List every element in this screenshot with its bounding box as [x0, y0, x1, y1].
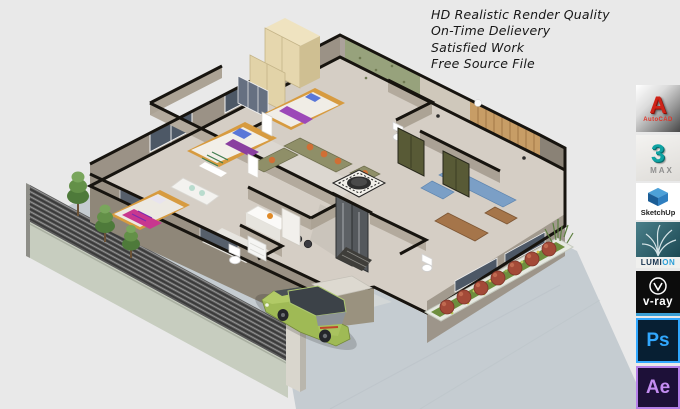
- logo-vray: v-ray: [636, 271, 680, 316]
- wall-lamp: [522, 156, 526, 160]
- sketchup-cube-icon: [647, 187, 669, 207]
- toilet: [230, 256, 241, 264]
- promo-line: Satisfied Work: [431, 40, 610, 56]
- taillight: [320, 327, 338, 328]
- lumion-label: LUMION: [636, 257, 680, 268]
- promo-text: HD Realistic Render Quality On-Time Deli…: [431, 7, 610, 72]
- pendant-light: [475, 100, 482, 107]
- bar-stool: [304, 240, 312, 248]
- logo-lumion: LUMION: [636, 222, 680, 268]
- wall-lamp: [436, 114, 440, 118]
- autocad-label: AutoCAD: [643, 117, 672, 123]
- logo-3ds-max: 3 MAX: [636, 135, 680, 181]
- vray-label: v-ray: [643, 296, 673, 308]
- logo-photoshop: Ps: [636, 318, 680, 363]
- vray-circle-icon: [648, 276, 668, 296]
- toilet: [422, 265, 432, 272]
- logo-after-effects: Ae: [636, 366, 680, 409]
- logo-sketchup: SketchUp: [636, 183, 680, 220]
- 3ds-max-label: MAX: [650, 166, 674, 175]
- gig-thumbnail: HD Realistic Render Quality On-Time Deli…: [0, 0, 680, 409]
- promo-line: HD Realistic Render Quality: [431, 7, 610, 23]
- sketchup-label: SketchUp: [641, 208, 676, 217]
- lumion-tree-icon: [636, 222, 680, 257]
- after-effects-ae-icon: Ae: [646, 377, 670, 399]
- promo-line: On-Time Delievery: [431, 23, 610, 39]
- 3ds-max-icon: 3: [651, 142, 665, 166]
- promo-line: Free Source File: [431, 56, 610, 72]
- autocad-a-icon: A: [649, 95, 666, 117]
- headlight: [265, 303, 269, 307]
- photoshop-ps-icon: Ps: [646, 330, 669, 352]
- logo-autocad: A AutoCAD: [636, 85, 680, 132]
